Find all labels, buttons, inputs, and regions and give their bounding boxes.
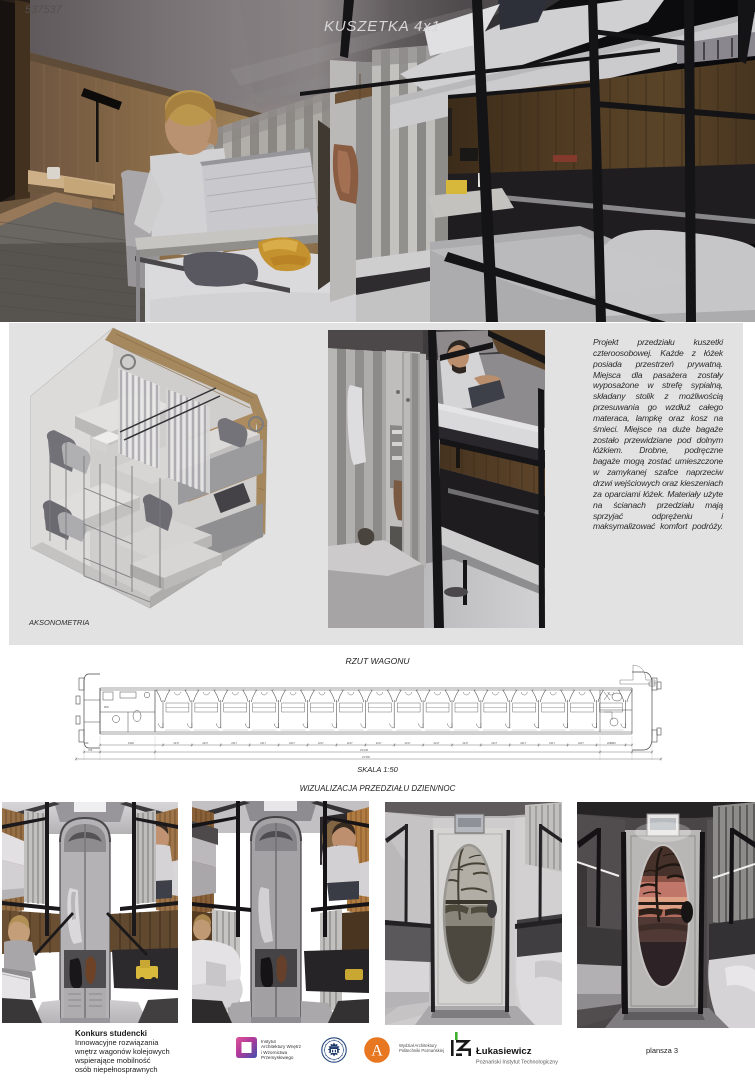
svg-text:706: 706 [88,748,93,752]
svg-text:2217: 2217 [549,741,555,745]
svg-text:2217: 2217 [434,741,440,745]
svg-text:2217: 2217 [318,741,324,745]
svg-text:2217: 2217 [491,741,497,745]
svg-text:2217: 2217 [520,741,526,745]
svg-text:2217: 2217 [260,741,266,745]
svg-text:23 038: 23 038 [360,748,368,752]
svg-text:2217: 2217 [462,741,468,745]
svg-text:24 500: 24 500 [362,755,370,759]
svg-text:1900: 1900 [128,741,134,745]
svg-text:2217: 2217 [231,741,237,745]
svg-text:1540: 1540 [610,741,616,745]
svg-text:Łukasiewicz: Łukasiewicz [476,1046,532,1057]
svg-text:537537: 537537 [25,4,63,16]
svg-text:WC: WC [104,705,110,709]
svg-text:2217: 2217 [347,741,353,745]
svg-text:940: 940 [84,741,89,745]
svg-text:2217: 2217 [578,741,584,745]
svg-text:2217: 2217 [405,741,411,745]
svg-text:Poznański Instytut Technologic: Poznański Instytut Technologiczny [476,1060,558,1066]
svg-text:A: A [371,1043,383,1060]
svg-text:2217: 2217 [202,741,208,745]
svg-text:2217: 2217 [289,741,295,745]
svg-text:2217: 2217 [173,741,179,745]
svg-text:KUSZETKA 4x1: KUSZETKA 4x1 [324,18,441,35]
svg-text:2217: 2217 [376,741,382,745]
